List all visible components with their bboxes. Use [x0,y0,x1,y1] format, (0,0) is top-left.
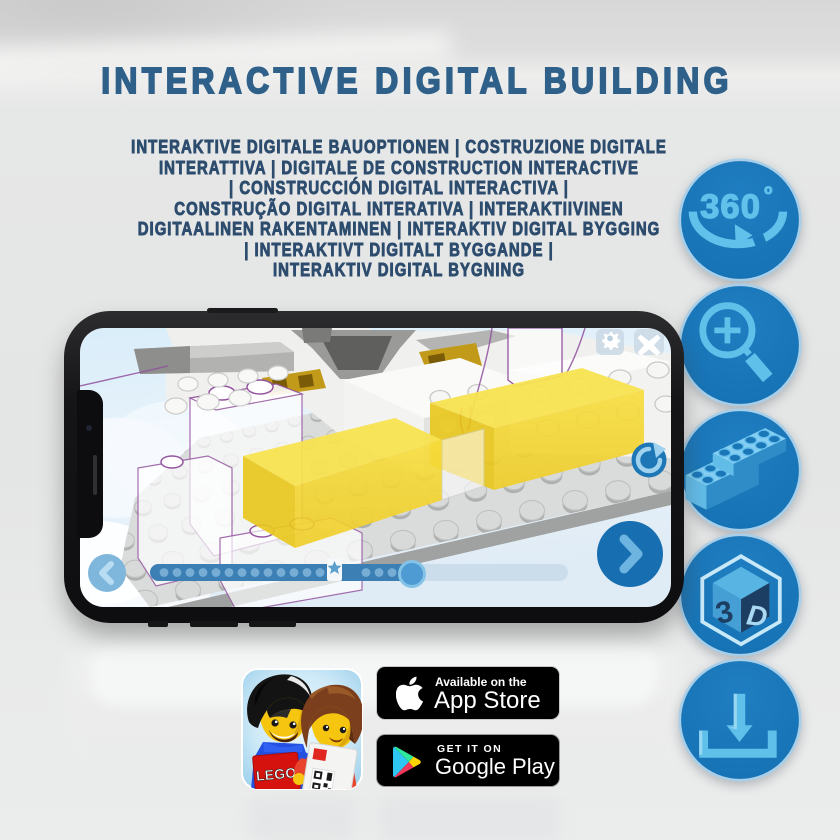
svg-text:o: o [764,182,772,197]
svg-text:360: 360 [700,188,761,226]
